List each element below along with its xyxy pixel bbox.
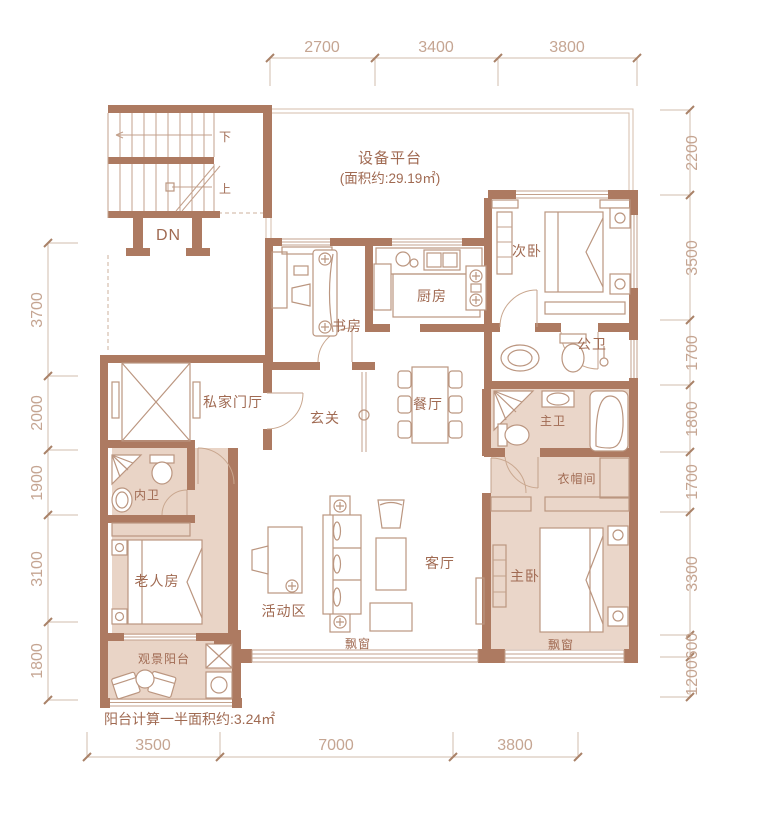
dim-bottom-1: 3500 <box>135 737 171 754</box>
dim-bottom-2: 7000 <box>318 737 354 754</box>
label-view-balcony: 观景阳台 <box>138 651 190 666</box>
dim-right-2: 3500 <box>684 240 701 276</box>
dim-left-3: 1900 <box>29 465 46 501</box>
label-dining-room: 餐厅 <box>413 396 443 412</box>
dimensions-left: 3700 2000 1900 3100 1800 <box>29 239 78 704</box>
label-public-bathroom: 公卫 <box>577 336 607 352</box>
label-living-room: 客厅 <box>425 555 455 571</box>
dimensions-right: 2200 3500 1700 1800 1700 3300 600 1200 <box>660 106 701 701</box>
furniture-kitchen <box>374 248 486 317</box>
dim-top-1: 2700 <box>304 39 340 56</box>
label-cloakroom: 衣帽间 <box>557 471 596 486</box>
dim-left-2: 2000 <box>29 395 46 431</box>
dim-right-3: 1700 <box>684 335 701 371</box>
label-entryway: 玄关 <box>310 410 340 426</box>
label-activity-zone: 活动区 <box>262 603 307 619</box>
door-main-entry <box>267 393 303 429</box>
label-master-bedroom: 主卧 <box>510 568 540 584</box>
floor-plan-drawing: 下 上 DN <box>0 0 775 820</box>
furniture-secondary-bedroom <box>497 208 630 314</box>
label-master-bathroom: 主卫 <box>540 414 566 428</box>
label-bay-window-living: 飘窗 <box>345 637 371 651</box>
window-kitchen-top <box>392 239 462 245</box>
label-elder-room: 老人房 <box>135 573 180 589</box>
label-private-foyer: 私家门厅 <box>203 394 263 410</box>
furniture-study <box>272 250 337 336</box>
floor-plan-page: 下 上 DN <box>0 0 775 820</box>
dim-right-5: 1700 <box>684 464 701 500</box>
stairs-up-label: 上 <box>219 182 232 196</box>
dim-right-6: 3300 <box>684 556 701 592</box>
label-equipment-platform-area: (面积约:29.19㎡) <box>340 171 441 186</box>
door-secondary-bedroom <box>500 290 537 327</box>
dim-right-4: 1800 <box>684 401 701 437</box>
bay-window-living <box>252 650 478 662</box>
dim-right-1: 2200 <box>684 135 701 171</box>
dim-top-2: 3400 <box>418 39 454 56</box>
entry-partition <box>359 372 369 452</box>
label-study: 书房 <box>332 318 362 334</box>
dim-left-1: 3700 <box>29 292 46 328</box>
label-kitchen: 厨房 <box>417 288 447 304</box>
dim-right-7: 600 <box>684 633 701 660</box>
balcony-note: 阳台计算一半面积约:3.24㎡ <box>104 711 275 727</box>
dim-top-3: 3800 <box>549 39 585 56</box>
label-inner-bathroom: 内卫 <box>134 488 160 502</box>
window-public-bath-right <box>629 340 638 378</box>
dim-left-4: 3100 <box>29 551 46 587</box>
label-equipment-platform: 设备平台 <box>358 150 422 167</box>
stairs-dn-label: DN <box>156 227 181 244</box>
dimensions-top: 2700 3400 3800 <box>266 39 641 86</box>
dim-bottom-3: 3800 <box>497 737 533 754</box>
elevator <box>112 363 200 441</box>
dim-right-8: 1200 <box>684 660 701 696</box>
label-secondary-bedroom: 次卧 <box>512 243 542 259</box>
stairwell: 下 上 DN <box>108 105 272 256</box>
label-bay-window-master: 飘窗 <box>548 638 574 652</box>
dim-left-5: 1800 <box>29 643 46 679</box>
stairs-down-label: 下 <box>219 130 232 144</box>
dimensions-bottom: 3500 7000 3800 <box>83 732 582 761</box>
window-balcony-bottom <box>110 699 232 706</box>
